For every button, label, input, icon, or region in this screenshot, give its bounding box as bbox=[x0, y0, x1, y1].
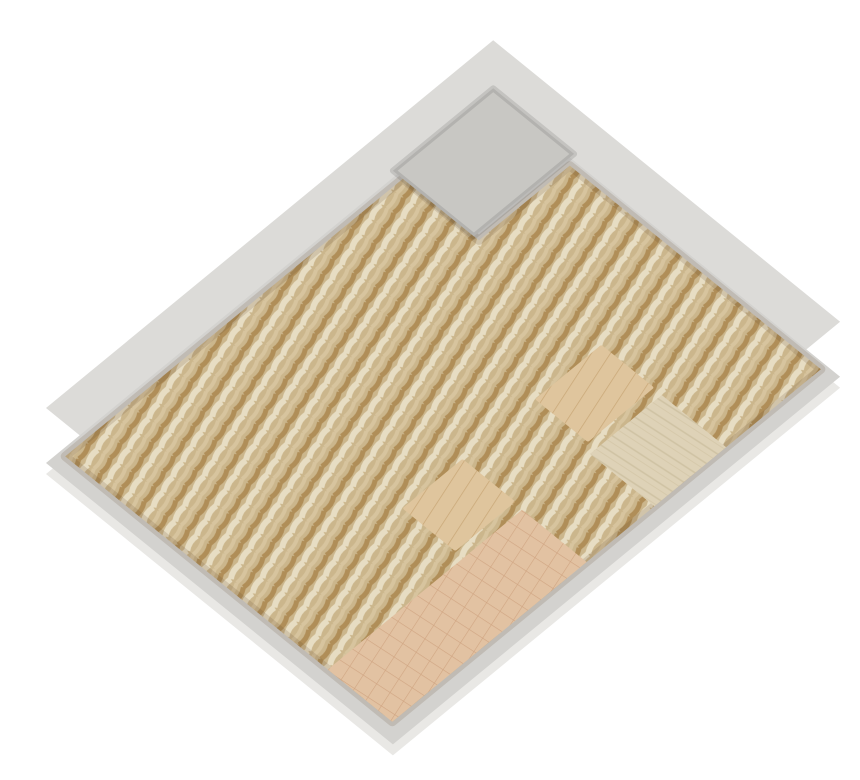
floorplan-svg bbox=[0, 0, 860, 780]
floorplan-render-page bbox=[0, 0, 860, 780]
